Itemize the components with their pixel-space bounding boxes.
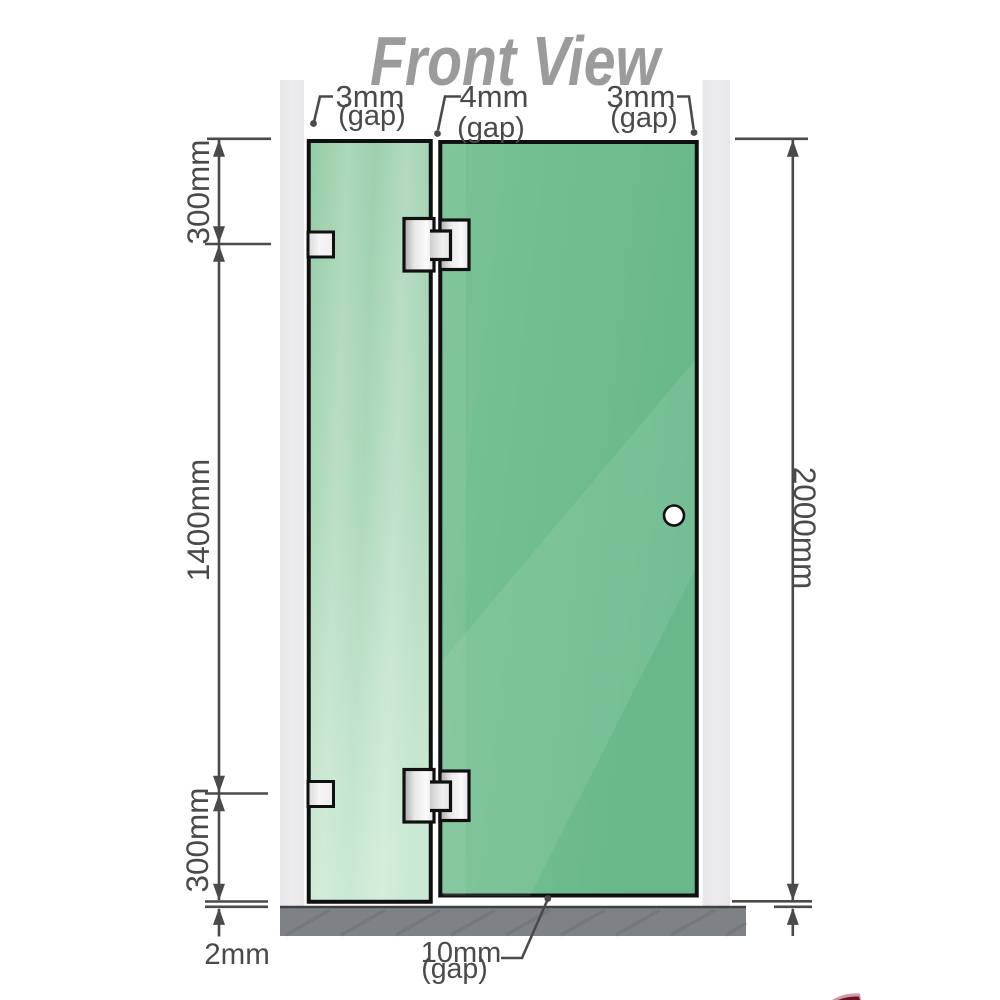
svg-text:1400mm: 1400mm (180, 459, 216, 582)
svg-text:300mm: 300mm (179, 787, 215, 892)
svg-text:(gap): (gap) (338, 100, 406, 132)
svg-text:(gap): (gap) (457, 112, 525, 144)
svg-text:4mm: 4mm (460, 79, 529, 114)
svg-text:(gap): (gap) (610, 102, 678, 134)
svg-text:(gap): (gap) (421, 953, 488, 985)
svg-text:2mm: 2mm (204, 938, 270, 971)
svg-text:300mm: 300mm (180, 139, 216, 244)
svg-text:2000mm: 2000mm (787, 467, 823, 590)
